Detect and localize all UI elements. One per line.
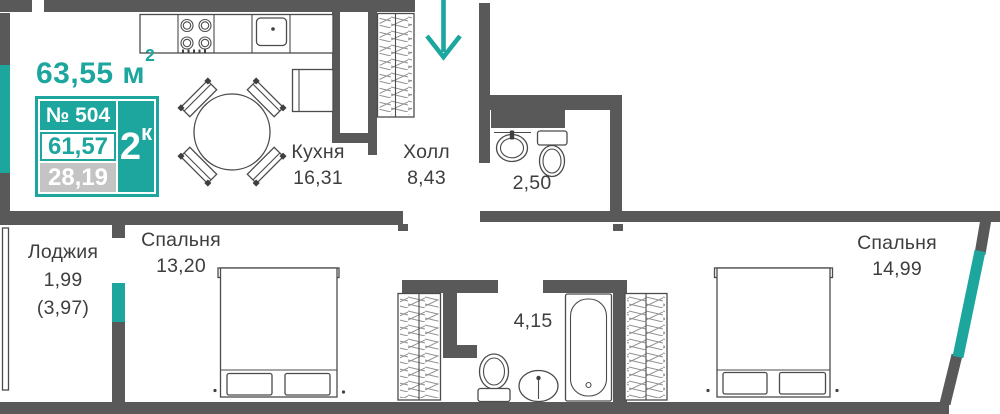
apartment-badge: № 504 61,57 28,19 2к	[35, 96, 159, 197]
bed-icon	[715, 268, 833, 397]
living-area: 61,57	[40, 132, 116, 161]
bedroom-right-label: Спальня 14,99	[838, 230, 956, 282]
loggia-label: Лоджия 1,99 (3,97)	[10, 238, 116, 322]
apartment-number: № 504	[40, 101, 116, 130]
dining-table-icon	[194, 94, 270, 170]
bathroom-small-label: 2,50	[492, 170, 572, 196]
kitchen-sink-icon	[257, 18, 287, 46]
rooms-count: 2к	[118, 101, 154, 192]
washbasin-icon	[494, 131, 531, 162]
wardrobe-bedroom-right	[625, 294, 667, 401]
kitchen-label: Кухня 16,31	[270, 139, 366, 191]
bedroom-left-label: Спальня 13,20	[123, 227, 239, 279]
entrance-arrow-icon	[427, 0, 460, 57]
washbasin-icon	[519, 371, 558, 402]
total-area-unit: м	[114, 57, 146, 90]
kitchen-counter	[140, 15, 333, 54]
bedroom-left-area: 13,20	[123, 253, 239, 279]
hall-label: Холл 8,43	[379, 139, 474, 191]
loggia-name: Лоджия	[10, 238, 116, 266]
loggia-area-full: (3,97)	[10, 294, 116, 322]
total-area-sup: 2	[145, 45, 155, 65]
bedroom-right-area: 14,99	[838, 256, 956, 282]
loggia-area: 1,99	[10, 266, 116, 294]
floor-plan: 63,55 м2 № 504 61,57 28,19 2к Кухня 16,3…	[0, 0, 1000, 414]
bathroom-large-label: 4,15	[493, 308, 573, 334]
bed-icon	[218, 268, 339, 397]
bathroom-small-area: 2,50	[492, 170, 572, 196]
bedroom-left-name: Спальня	[123, 227, 239, 253]
rooms-count-sup: к	[141, 122, 152, 144]
extra-area: 28,19	[40, 163, 116, 192]
hall-name: Холл	[379, 139, 474, 165]
apartment-badge-left: № 504 61,57 28,19	[40, 101, 116, 192]
kitchen-name: Кухня	[270, 139, 366, 165]
hall-area: 8,43	[379, 165, 474, 191]
wardrobe-bedroom-left	[398, 294, 441, 401]
bedroom-right-name: Спальня	[838, 230, 956, 256]
rooms-count-value: 2	[120, 128, 141, 166]
kitchen-window	[0, 65, 10, 173]
kitchen-cabinet	[293, 70, 334, 112]
bedroom-right-window	[958, 251, 980, 357]
toilet-icon	[478, 354, 510, 402]
total-area-title: 63,55 м2	[36, 56, 155, 91]
loggia-railing	[3, 228, 9, 390]
kitchen-area: 16,31	[270, 165, 366, 191]
bathroom-large-area: 4,15	[493, 308, 573, 334]
wardrobe-hall	[378, 14, 415, 118]
total-area-value: 63,55	[36, 57, 114, 90]
